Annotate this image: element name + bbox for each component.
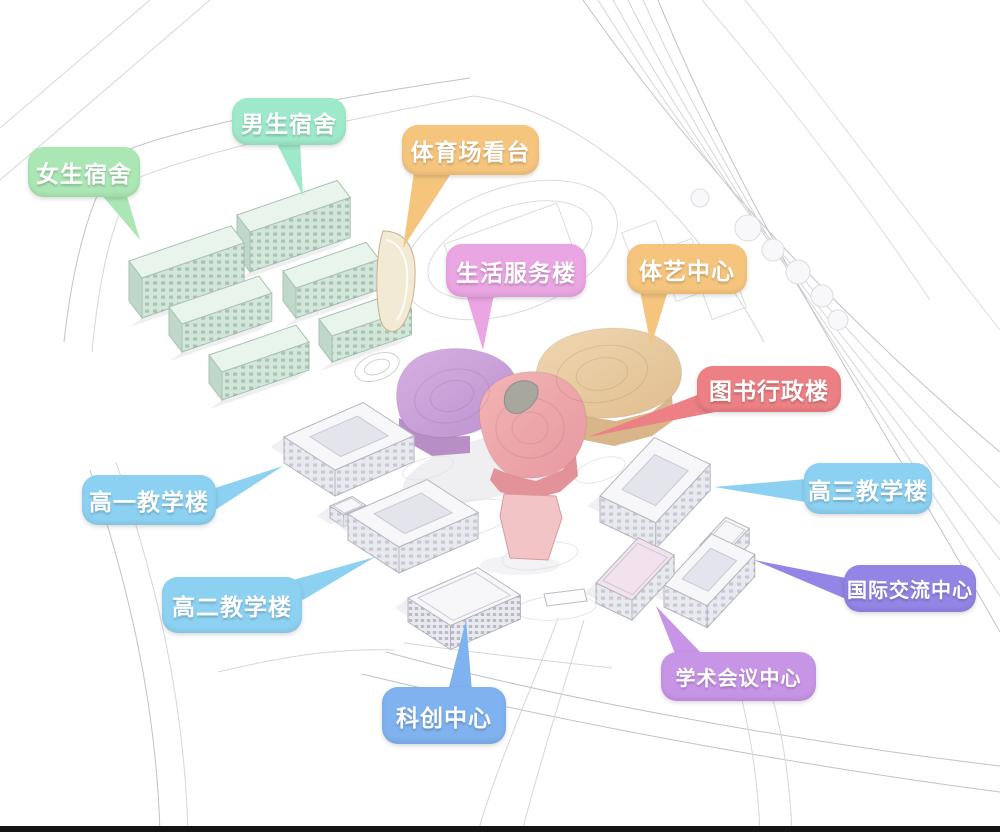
label-tail-sci-innovation (448, 620, 472, 691)
label-life-service-building: 生活服务楼 (446, 244, 586, 297)
label-tail-grade3-teaching (714, 479, 806, 502)
label-tail-girls-dorm (100, 193, 140, 240)
label-boys-dorm: 男生宿舍 (232, 98, 346, 145)
label-library-admin-building: 图书行政楼 (697, 366, 841, 412)
label-tail-life-service (466, 294, 494, 350)
label-stadium-stands: 体育场看台 (402, 125, 539, 175)
label-tail-grade1-teaching (212, 466, 283, 512)
label-academic-conference: 学术会议中心 (661, 652, 816, 701)
label-tail-library-admin (588, 394, 715, 437)
label-tail-stadium-stands (403, 172, 452, 248)
label-international-exchange: 国际交流中心 (844, 565, 976, 612)
label-tail-sports-arts-center (640, 291, 668, 346)
label-girls-dorm: 女生宿舍 (28, 147, 140, 197)
label-sports-arts-center: 体艺中心 (627, 244, 747, 294)
label-tail-international-exchange (754, 560, 846, 599)
label-tail-academic-conference (656, 606, 704, 656)
label-tail-boys-dorm (276, 142, 303, 196)
label-sci-innovation-center: 科创中心 (382, 687, 506, 744)
label-grade2-teaching: 高二教学楼 (162, 577, 302, 633)
label-grade3-teaching: 高三教学楼 (804, 463, 932, 514)
campus-master-plan: 女生宿舍 男生宿舍 体育场看台 生活服务楼 体艺中心 图书行政楼 高一教学楼 高… (0, 0, 1000, 832)
label-grade1-teaching: 高一教学楼 (82, 475, 216, 525)
